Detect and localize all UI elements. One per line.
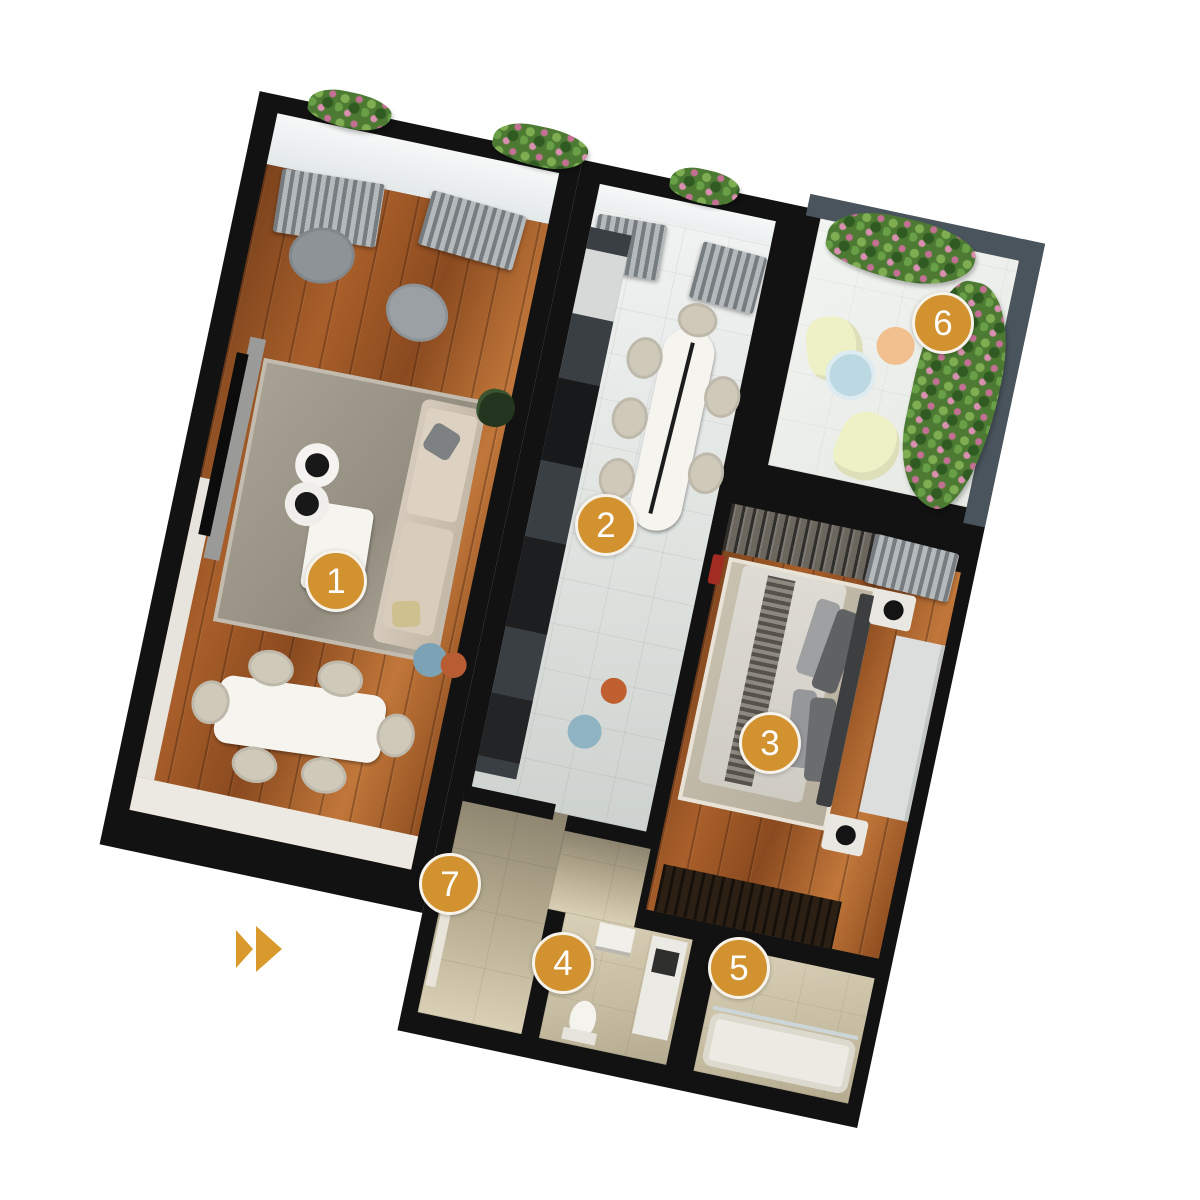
room-marker-2[interactable]: 2	[575, 494, 637, 556]
room-marker-3[interactable]: 3	[739, 712, 801, 774]
chevron-large-icon	[256, 926, 282, 972]
sofa-pillow	[392, 601, 421, 628]
room-marker-1[interactable]: 1	[305, 550, 367, 612]
next-chevron-icon[interactable]	[236, 926, 286, 974]
bathroom4-sink	[651, 948, 679, 976]
room-marker-5[interactable]: 5	[708, 937, 770, 999]
room-marker-4[interactable]: 4	[532, 932, 594, 994]
room-marker-7[interactable]: 7	[419, 853, 481, 915]
chevron-small-icon	[236, 930, 253, 968]
room-marker-6[interactable]: 6	[912, 292, 974, 354]
floorplan-canvas: 1 2 3 4 5 6 7	[0, 0, 1200, 1200]
